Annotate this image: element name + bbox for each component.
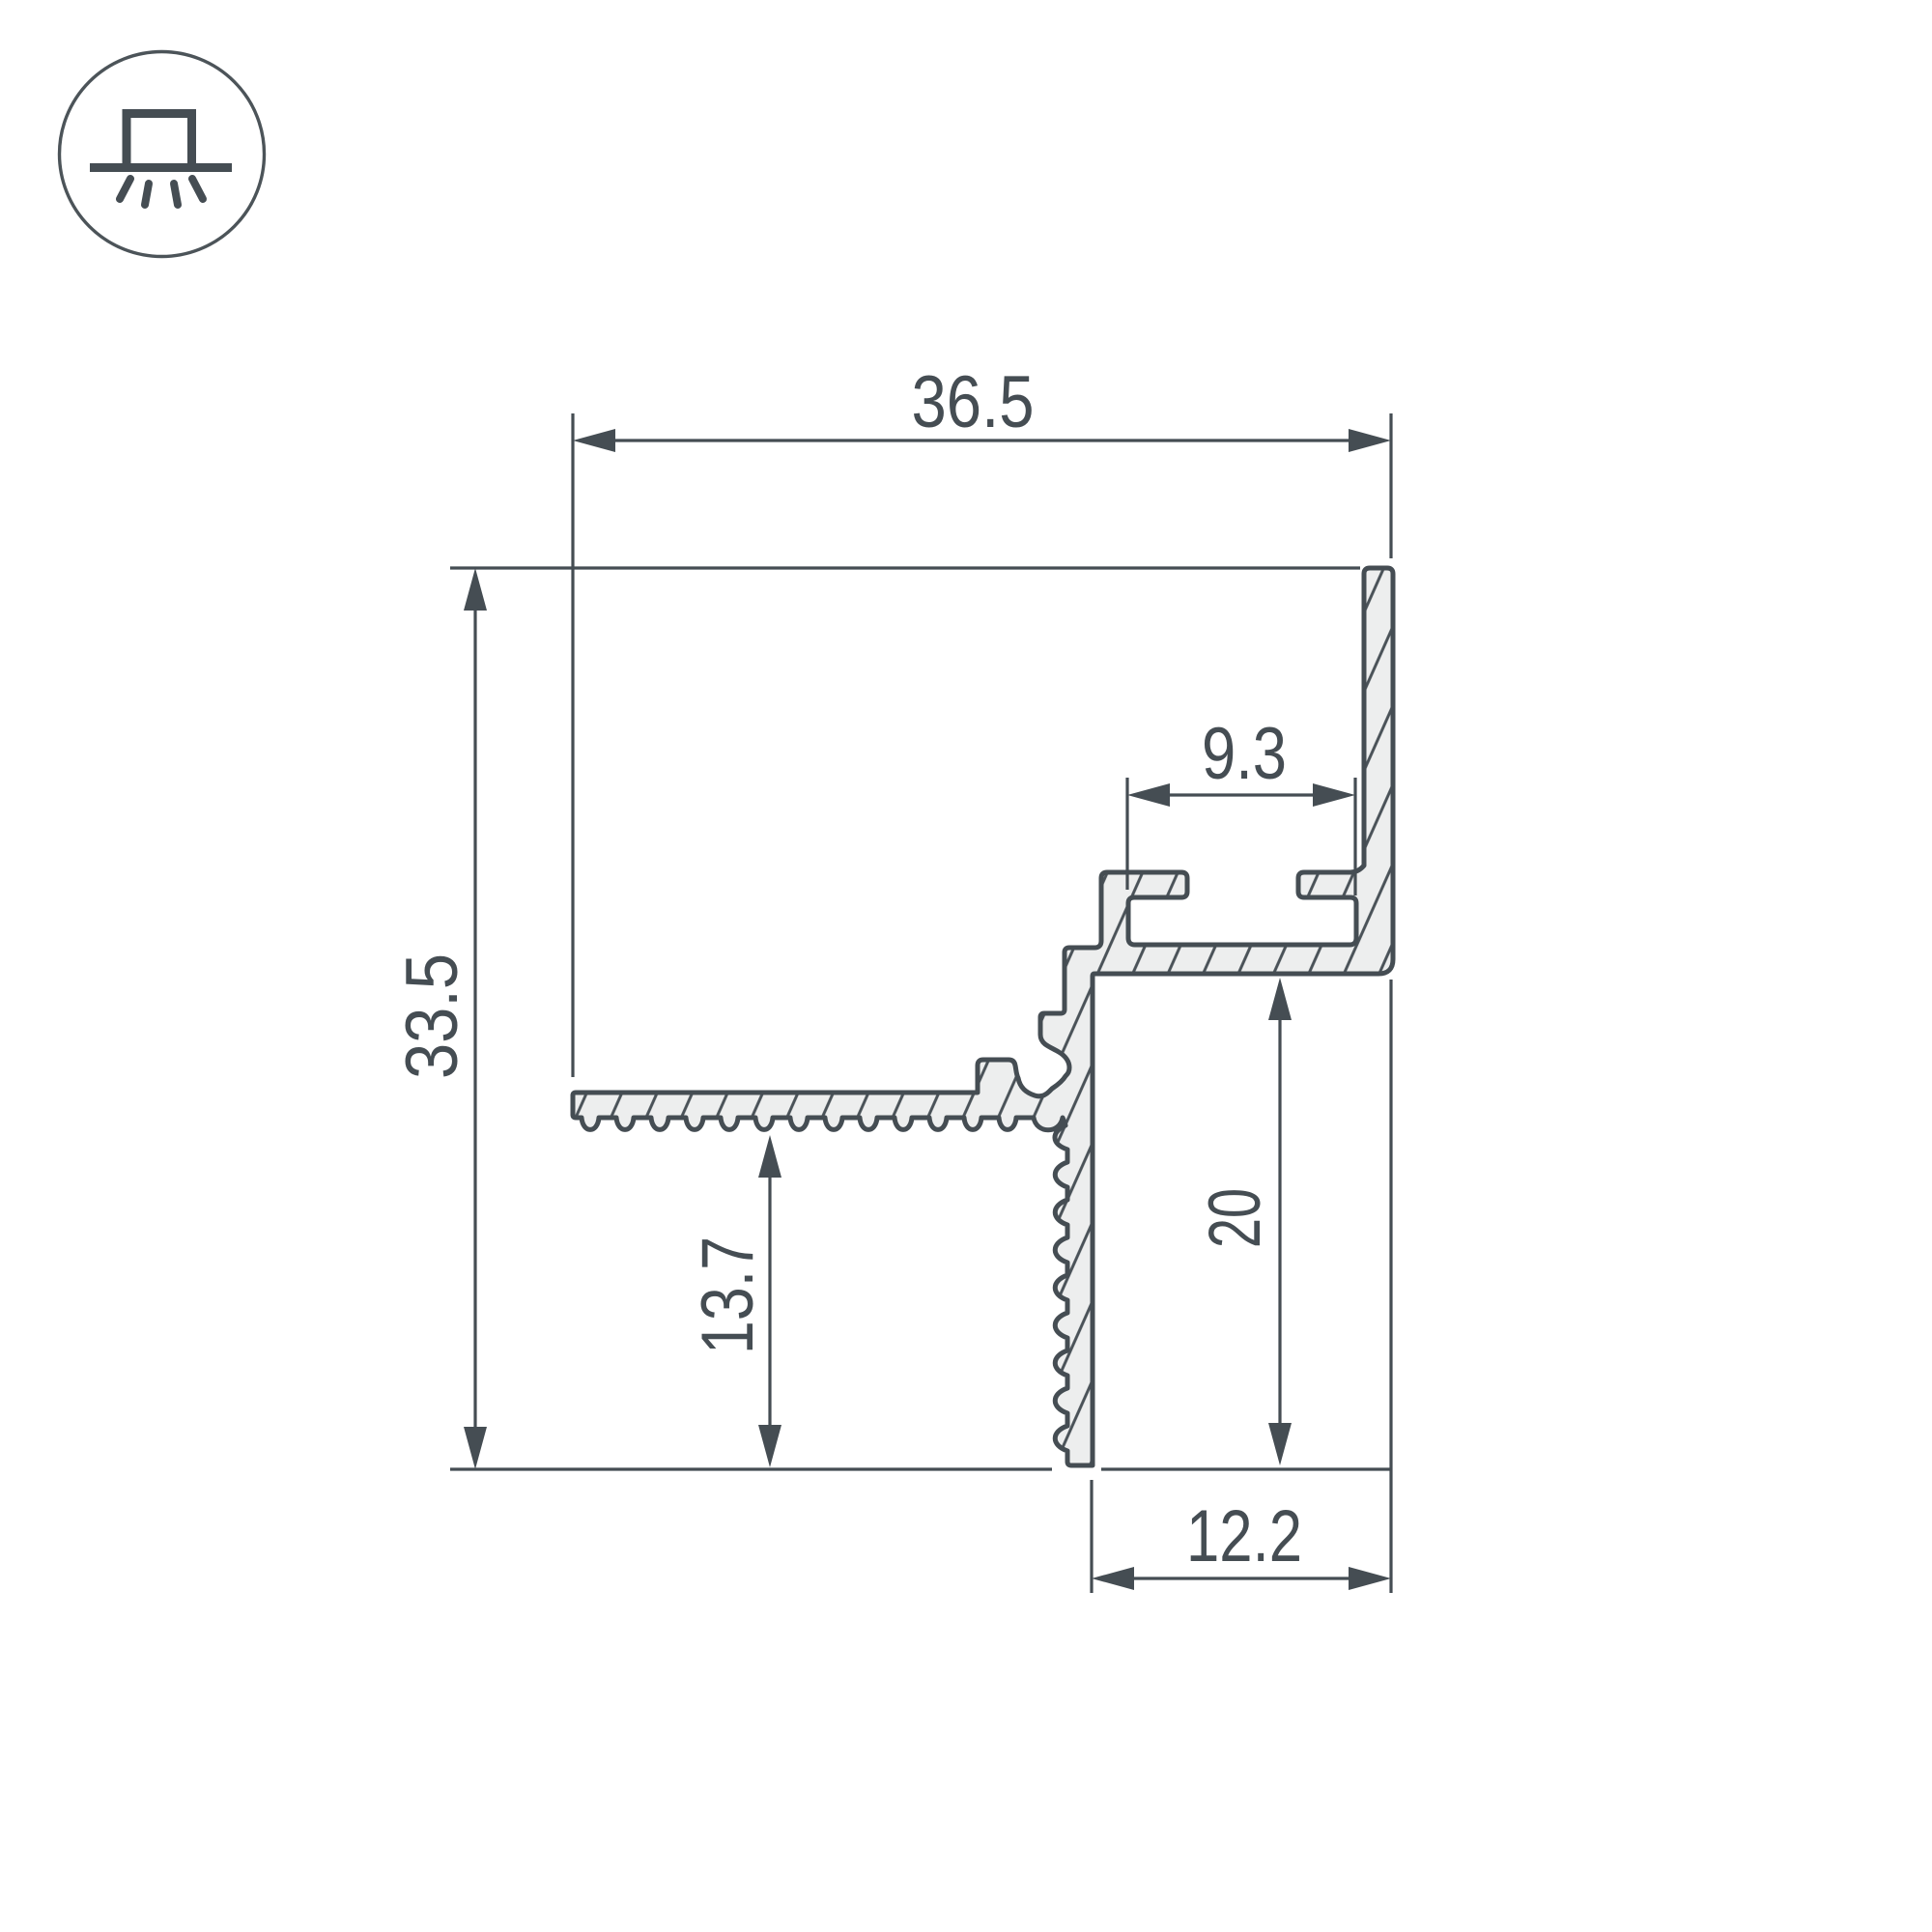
svg-text:9.3: 9.3 — [1202, 713, 1287, 795]
svg-text:36.5: 36.5 — [912, 361, 1035, 443]
svg-text:13.7: 13.7 — [687, 1236, 769, 1354]
svg-text:20: 20 — [1194, 1188, 1276, 1248]
svg-text:33.5: 33.5 — [391, 953, 473, 1079]
svg-text:12.2: 12.2 — [1186, 1495, 1302, 1577]
